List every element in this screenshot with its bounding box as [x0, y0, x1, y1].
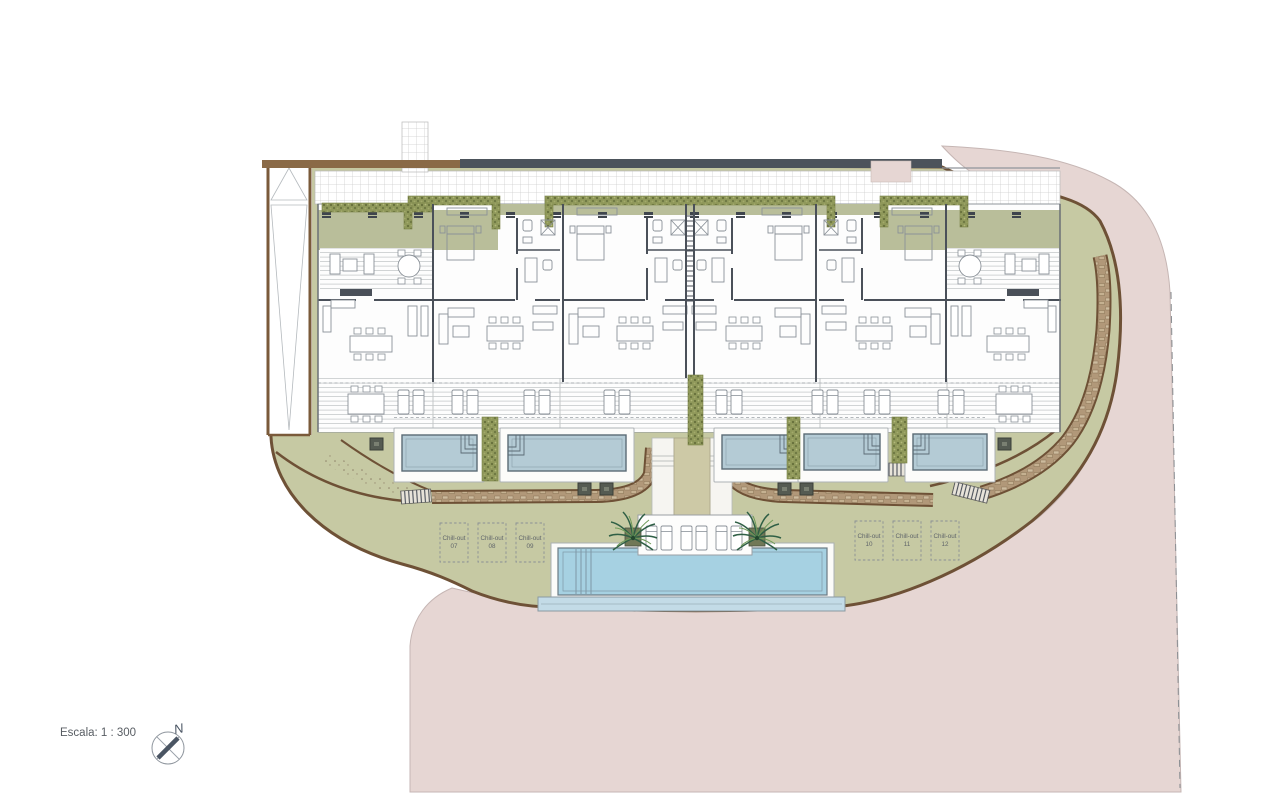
site-plan-drawing: Chill-out 07 Chill-out 08 Chill-out 09 C…: [0, 0, 1280, 800]
access-ramp: [266, 163, 312, 435]
private-pool-5: [913, 434, 987, 470]
entrance-mat: [871, 161, 911, 182]
walkway-steps-left: [652, 438, 674, 518]
chill-out-label: Chill-out: [480, 535, 503, 542]
chill-out-label: Chill-out: [895, 533, 918, 540]
chill-out-number: 09: [526, 543, 534, 550]
chill-out-number: 10: [865, 541, 873, 548]
garden-steps: [401, 489, 432, 504]
ramp-surface: [266, 163, 312, 435]
private-pool-3: [722, 435, 796, 469]
scale-label: Escala: 1 : 300: [60, 727, 136, 739]
chill-out-label: Chill-out: [518, 535, 541, 542]
private-pool-2: [508, 435, 626, 471]
chill-out-label: Chill-out: [857, 533, 880, 540]
chill-out-number: 12: [941, 541, 949, 548]
chill-out-label: Chill-out: [933, 533, 956, 540]
chill-out-label: Chill-out: [442, 535, 465, 542]
central-hedge: [688, 375, 703, 445]
chill-out-number: 07: [450, 543, 458, 550]
site-plan-page: Chill-out 07 Chill-out 08 Chill-out 09 C…: [0, 0, 1280, 800]
chill-out-number: 11: [904, 541, 911, 548]
canopy-edge-brown: [262, 160, 460, 168]
canopy-edge-dark: [460, 159, 942, 168]
private-pool-4: [804, 434, 880, 470]
chill-out-number: 08: [488, 543, 496, 550]
walkway-path: [674, 438, 710, 522]
central-stairs: [687, 214, 693, 302]
